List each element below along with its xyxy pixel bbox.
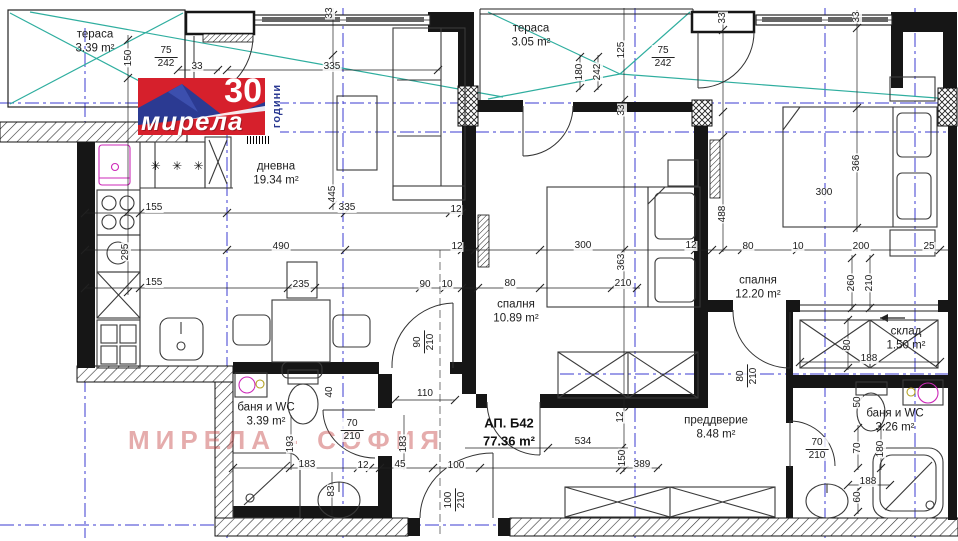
kitchen-units <box>97 137 233 368</box>
logo-barcode <box>247 136 269 144</box>
logo-brand: мирела <box>141 108 243 134</box>
logo-years: 30 <box>224 74 262 108</box>
windows <box>186 12 892 34</box>
bedroom1-furniture <box>547 160 700 398</box>
bathroom2-fixtures <box>806 380 943 518</box>
pillars <box>458 86 957 126</box>
watermark: МИРЕЛА - СОФИЯ <box>128 425 445 456</box>
logo-years-word: години <box>271 84 283 128</box>
hatched-walls <box>0 122 958 536</box>
mirela-logo: мирела 30 години <box>138 78 280 135</box>
hall-cabinet <box>565 487 775 517</box>
floorplan-page: мирела 30 години МИРЕЛА - СОФИЯ тераса3.… <box>0 0 958 541</box>
